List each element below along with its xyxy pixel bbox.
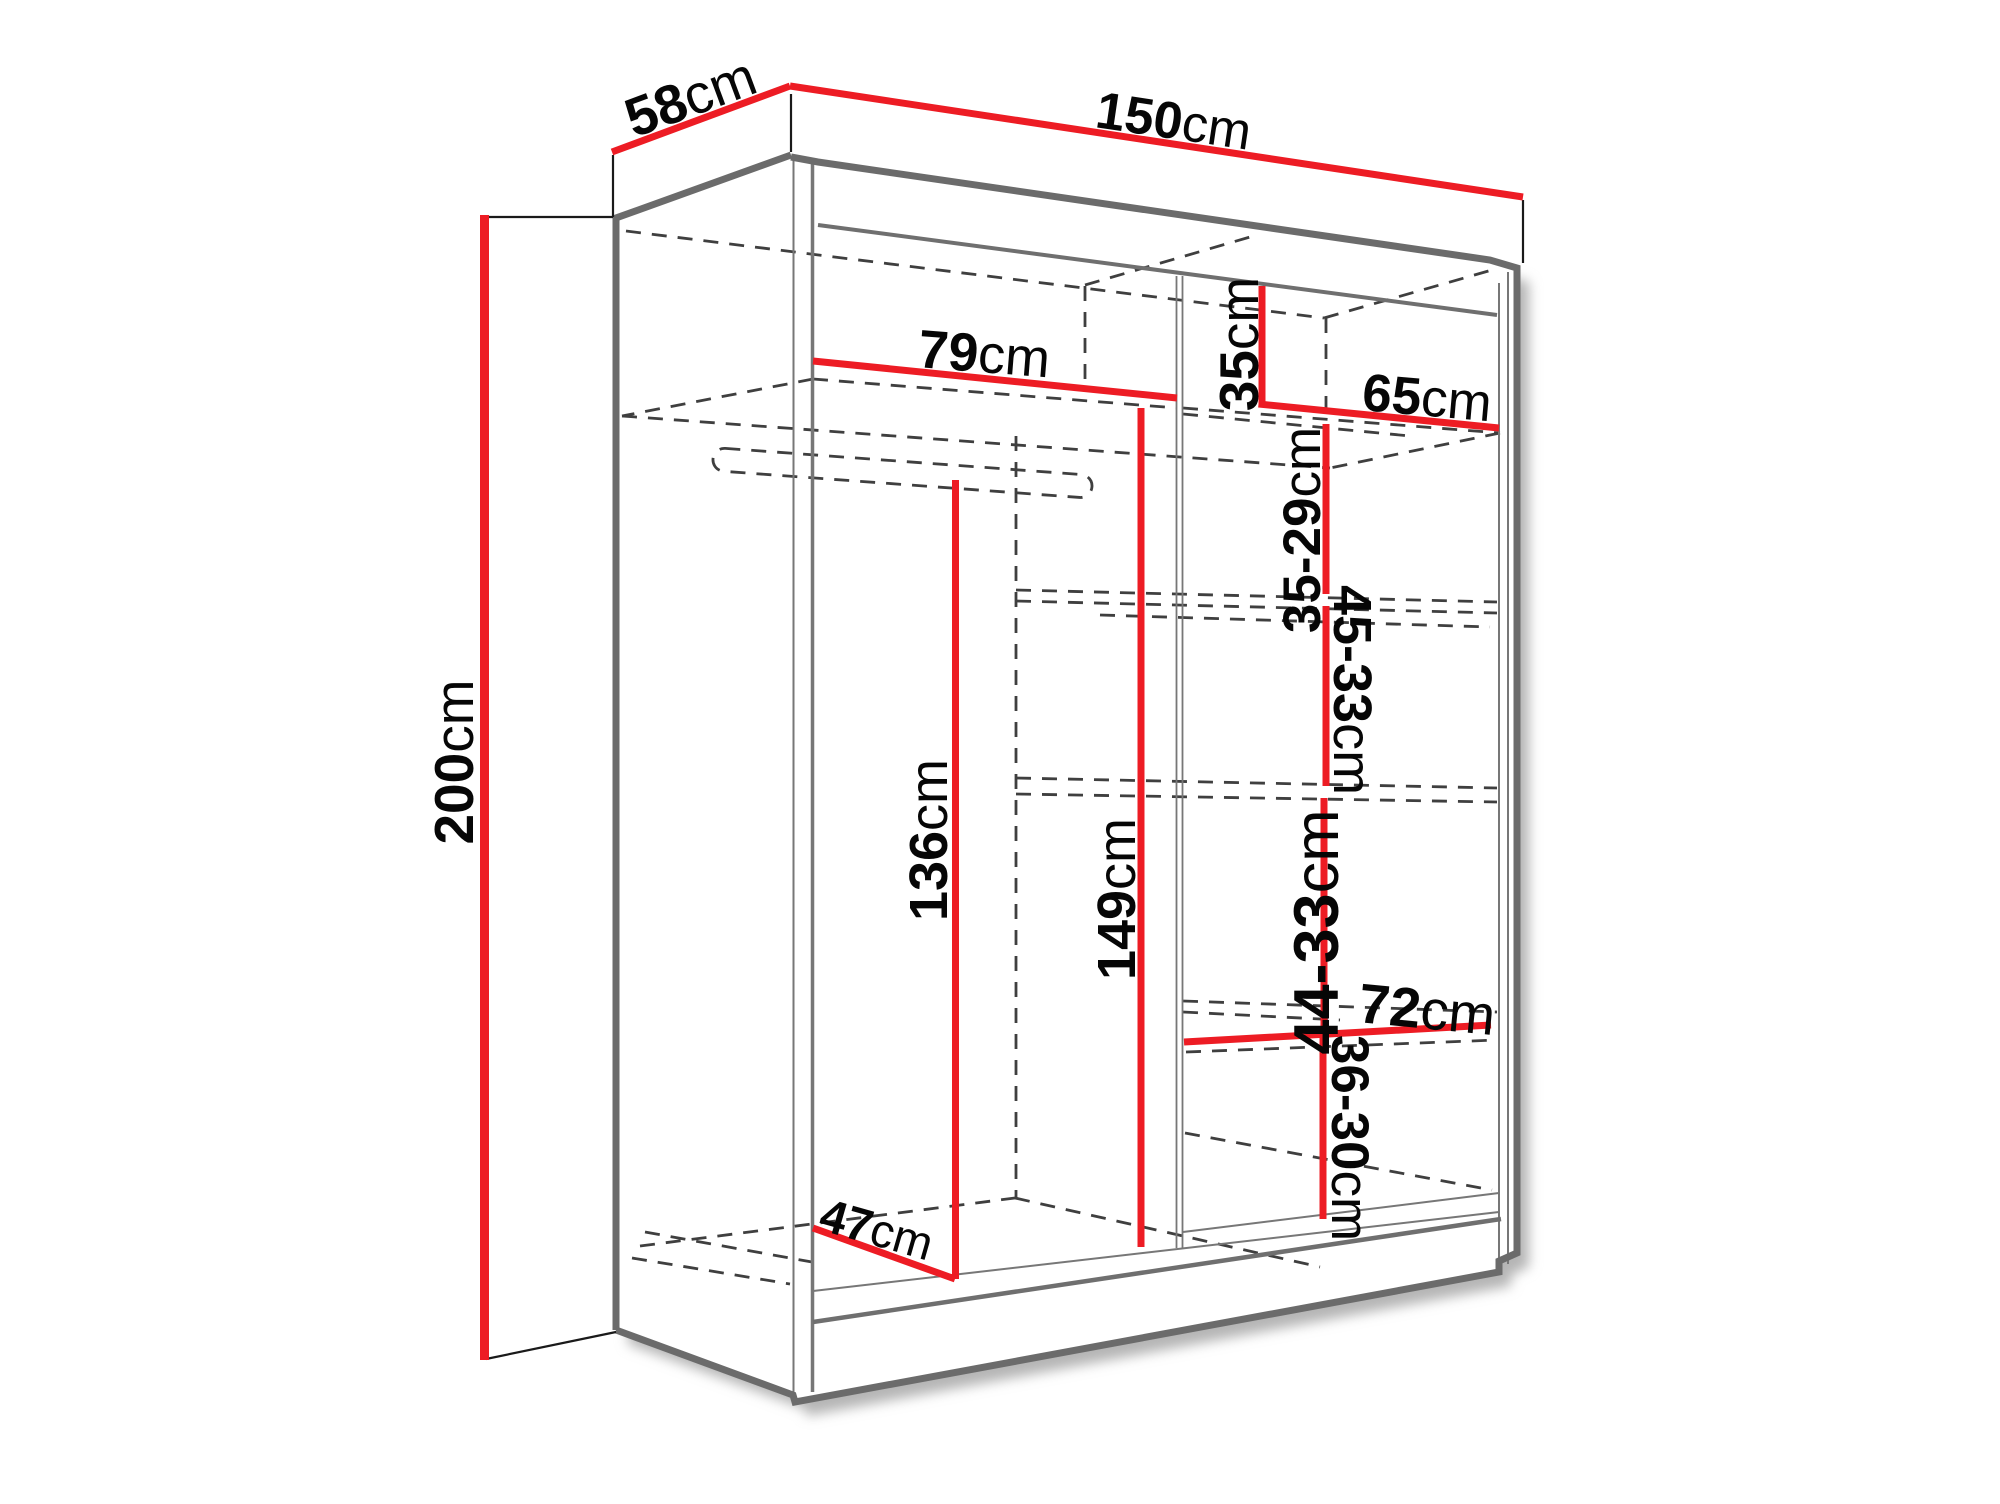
svg-text:79cm: 79cm bbox=[916, 319, 1052, 389]
svg-text:136cm: 136cm bbox=[899, 759, 959, 921]
svg-text:44-33cm: 44-33cm bbox=[1282, 809, 1352, 1054]
svg-text:200cm: 200cm bbox=[423, 679, 485, 844]
svg-text:65cm: 65cm bbox=[1360, 363, 1494, 433]
svg-text:35cm: 35cm bbox=[1208, 277, 1270, 412]
svg-text:45-33cm: 45-33cm bbox=[1322, 585, 1382, 795]
svg-text:149cm: 149cm bbox=[1087, 818, 1147, 980]
svg-text:36-30cm: 36-30cm bbox=[1320, 1035, 1379, 1241]
